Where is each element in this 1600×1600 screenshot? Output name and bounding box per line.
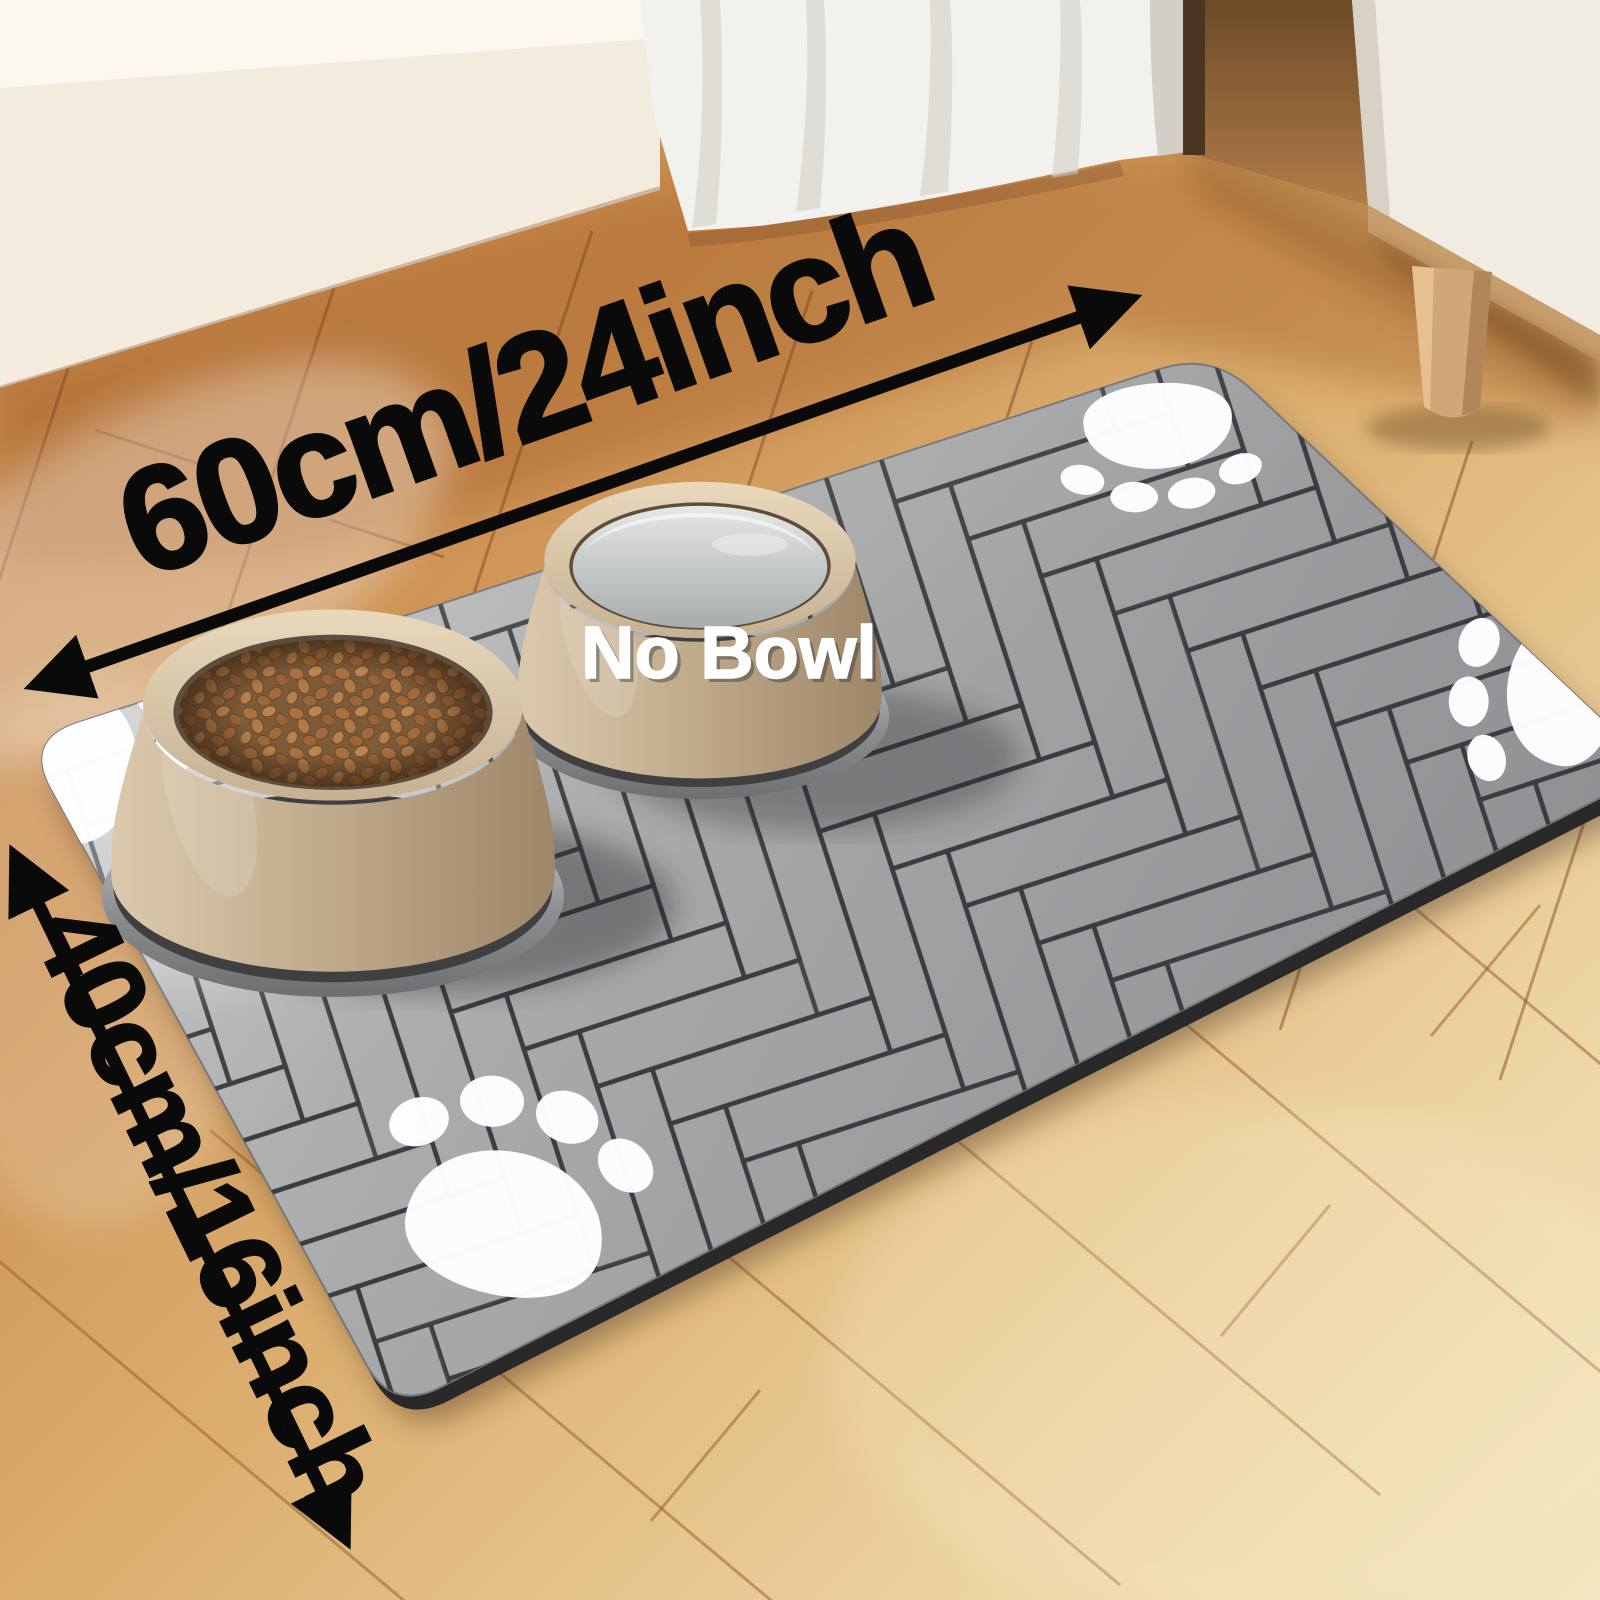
no-bowl-label: No Bowl [581,611,877,694]
food-bowl [102,609,564,996]
water-surface [573,506,828,628]
product-photo: 60cm/24inch 40cm/16inch No Bowl No Bowl [0,0,1600,1600]
